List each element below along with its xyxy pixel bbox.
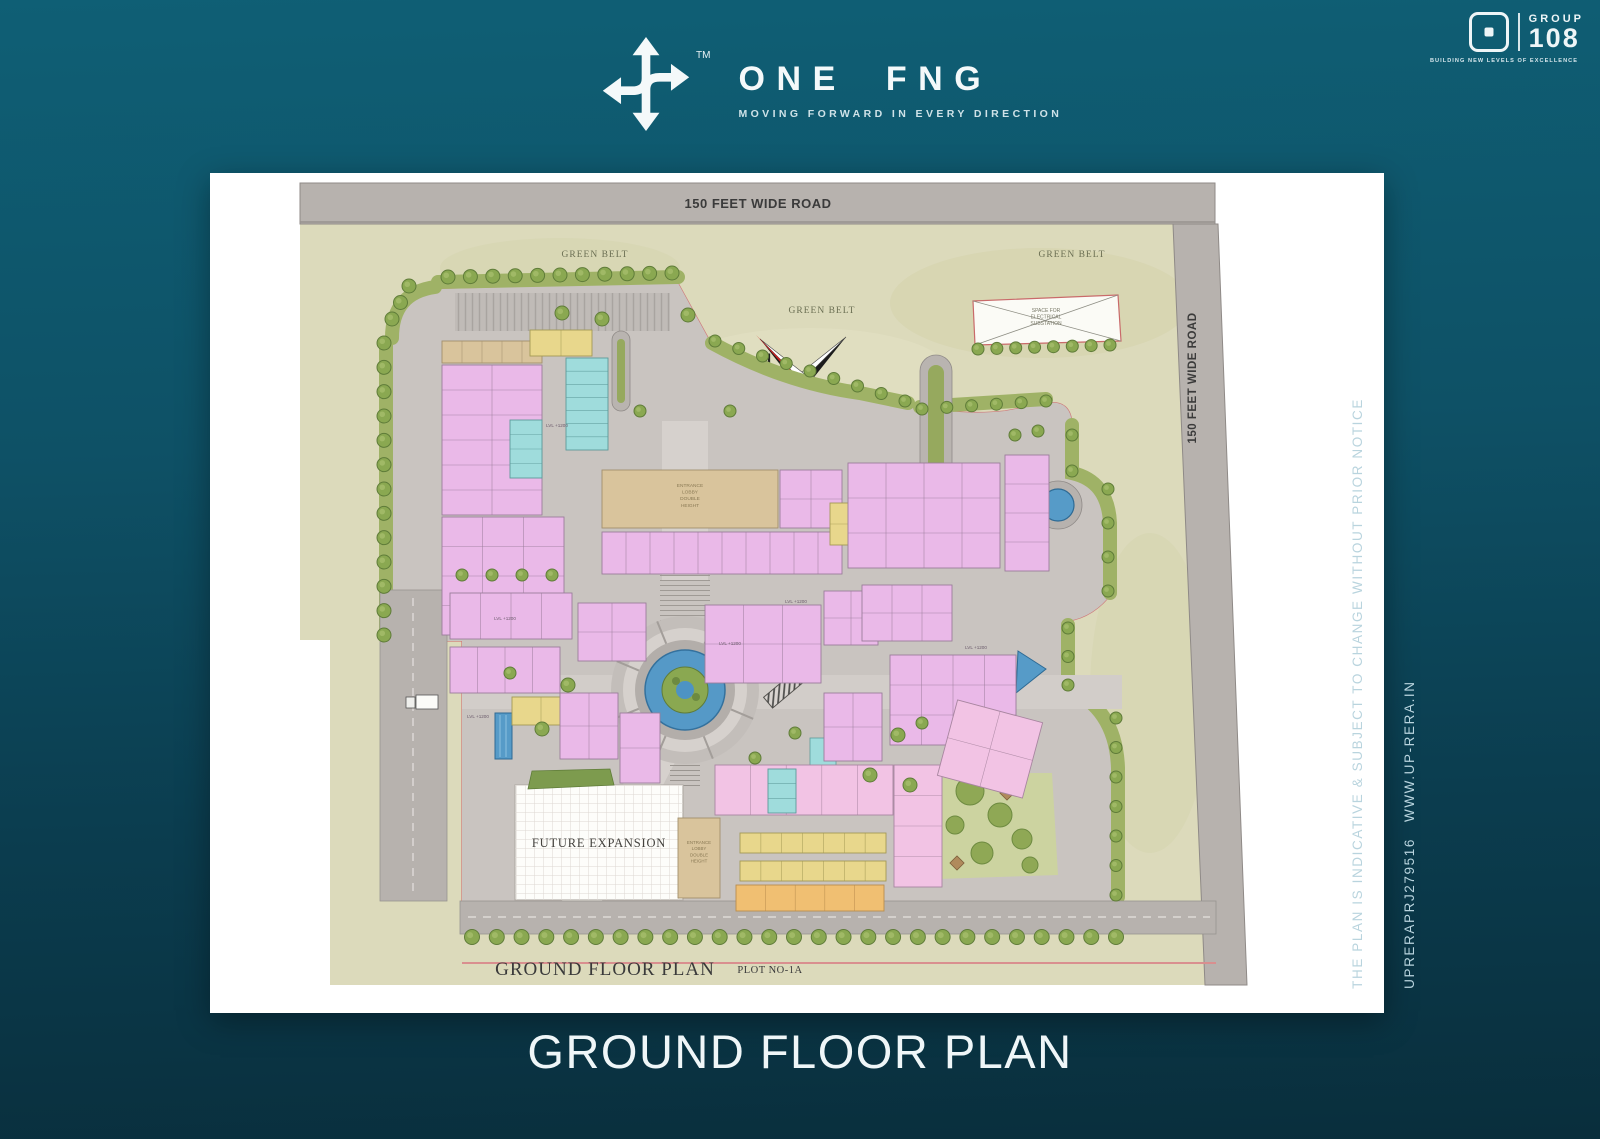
tree-icon <box>966 400 978 412</box>
group108-tagline: BUILDING NEW LEVELS OF EXCELLENCE <box>1424 58 1584 64</box>
lap-pool <box>495 713 512 759</box>
tree-icon <box>377 385 391 399</box>
building-cluster <box>848 463 1000 568</box>
tree-icon <box>916 717 928 729</box>
tree-icon <box>861 930 876 945</box>
trademark-symbol: TM <box>696 50 710 61</box>
tree-icon <box>535 722 549 736</box>
tree-icon <box>377 458 391 472</box>
tree-icon <box>1110 830 1122 842</box>
tree-icon <box>377 433 391 447</box>
building-cluster <box>560 693 618 759</box>
level-label: LVL +1200 <box>494 616 516 621</box>
building-cluster <box>602 532 842 574</box>
tree-icon <box>504 667 516 679</box>
tree-icon <box>377 409 391 423</box>
tree-icon <box>1062 622 1074 634</box>
building-cluster <box>740 833 886 853</box>
plan-title-label: GROUND FLOOR PLAN <box>495 959 715 980</box>
tree-icon <box>1110 801 1122 813</box>
building-cluster <box>442 341 542 363</box>
tree-icon <box>486 269 500 283</box>
tree-icon <box>553 268 567 282</box>
top-road-label: 150 FEET WIDE ROAD <box>685 196 832 211</box>
tree-icon <box>1102 585 1114 597</box>
tree-icon <box>377 628 391 642</box>
tree-icon <box>916 403 928 415</box>
tree-icon <box>863 768 877 782</box>
tree-icon <box>561 678 575 692</box>
garden-mound <box>1012 829 1032 849</box>
tree-icon <box>620 267 634 281</box>
tree-icon <box>575 268 589 282</box>
logo-divider <box>1518 13 1520 51</box>
building-cluster <box>736 885 884 911</box>
hedge-strip <box>528 769 614 789</box>
tree-icon <box>886 930 901 945</box>
tree-icon <box>991 342 1003 354</box>
tree-icon <box>1110 712 1122 724</box>
disclaimer-line1: THE PLAN IS INDICATIVE & SUBJECT TO CHAN… <box>1347 398 1369 989</box>
group108-number: 108 <box>1529 25 1584 51</box>
tree-icon <box>852 380 864 392</box>
brand-logo: TM ONE FNG MOVING FORWARD IN EVERY DIREC… <box>598 36 1062 132</box>
building-cluster <box>740 861 886 881</box>
tree-icon <box>757 350 769 362</box>
building-cluster <box>530 330 592 356</box>
tree-icon <box>990 398 1002 410</box>
tree-icon <box>377 336 391 350</box>
tree-icon <box>508 269 522 283</box>
brand-tagline: MOVING FORWARD IN EVERY DIRECTION <box>738 108 1062 120</box>
tree-icon <box>665 266 679 280</box>
site-plan-drawing: 150 FEET WIDE ROAD 150 FEET WIDE ROAD GR… <box>210 173 1384 1013</box>
building-cluster <box>862 585 952 641</box>
tree-icon <box>985 930 1000 945</box>
tree-icon <box>1059 930 1074 945</box>
tree-icon <box>377 555 391 569</box>
plot-number-label: PLOT NO-1A <box>737 965 802 976</box>
tree-icon <box>377 579 391 593</box>
tree-icon <box>588 930 603 945</box>
tree-icon <box>972 343 984 355</box>
tree-icon <box>1062 679 1074 691</box>
tree-icon <box>1066 429 1078 441</box>
tree-icon <box>899 395 911 407</box>
tree-icon <box>709 335 721 347</box>
tree-icon <box>1040 395 1052 407</box>
tree-icon <box>546 569 558 581</box>
tree-icon <box>733 343 745 355</box>
tree-icon <box>941 401 953 413</box>
disclaimer-note: THE PLAN IS INDICATIVE & SUBJECT TO CHAN… <box>1317 398 1436 989</box>
tree-icon <box>634 405 646 417</box>
tree-icon <box>514 930 529 945</box>
tree-icon <box>595 312 609 326</box>
group108-icon <box>1469 12 1509 52</box>
tree-icon <box>935 930 950 945</box>
building-cluster <box>578 603 646 661</box>
tree-icon <box>804 365 816 377</box>
tree-icon <box>377 531 391 545</box>
tree-icon <box>1110 889 1122 901</box>
level-label: LVL +1200 <box>546 423 568 428</box>
tree-icon <box>489 930 504 945</box>
building-cluster <box>510 420 542 478</box>
tree-icon <box>394 296 408 310</box>
tree-icon <box>1010 342 1022 354</box>
tree-icon <box>875 388 887 400</box>
tree-icon <box>910 930 925 945</box>
tree-icon <box>836 930 851 945</box>
tree-icon <box>681 308 695 322</box>
tree-icon <box>1102 517 1114 529</box>
tree-icon <box>811 930 826 945</box>
page-title: GROUND FLOOR PLAN <box>0 1024 1600 1079</box>
tree-icon <box>687 930 702 945</box>
tree-icon <box>402 279 416 293</box>
tree-icon <box>789 727 801 739</box>
disclaimer-line2: UPRERAPRJ279516 WWW.UP-RERA.IN <box>1399 398 1421 989</box>
tree-icon <box>1034 930 1049 945</box>
tree-icon <box>486 569 498 581</box>
tree-icon <box>564 930 579 945</box>
building-cluster <box>894 765 942 887</box>
building-cluster <box>768 769 796 813</box>
garden-mound <box>1022 857 1038 873</box>
tree-icon <box>1047 341 1059 353</box>
tree-icon <box>1102 551 1114 563</box>
tree-icon <box>787 930 802 945</box>
tree-icon <box>1109 930 1124 945</box>
dropoff-loop-small <box>612 331 630 411</box>
tree-icon <box>643 266 657 280</box>
level-label: LVL +1200 <box>719 641 741 646</box>
tree-icon <box>1102 483 1114 495</box>
tree-icon <box>1110 771 1122 783</box>
tree-icon <box>1015 397 1027 409</box>
right-road-label: 150 FEET WIDE ROAD <box>1187 312 1199 443</box>
green-belt-label-3: GREEN BELT <box>789 306 856 316</box>
tree-icon <box>377 604 391 618</box>
building-cluster <box>620 713 660 783</box>
tree-icon <box>1029 341 1041 353</box>
level-label: LVL +1200 <box>965 645 987 650</box>
tree-icon <box>463 270 477 284</box>
tree-icon <box>465 930 480 945</box>
tree-icon <box>828 373 840 385</box>
tree-icon <box>441 270 455 284</box>
tree-icon <box>1066 465 1078 477</box>
tree-icon <box>555 306 569 320</box>
tree-icon <box>531 268 545 282</box>
tree-icon <box>377 506 391 520</box>
level-label: LVL +1200 <box>467 714 489 719</box>
building-cluster <box>824 693 882 761</box>
truck-icon <box>406 695 438 709</box>
tree-icon <box>1110 860 1122 872</box>
tree-icon <box>539 930 554 945</box>
tree-icon <box>663 930 678 945</box>
tree-icon <box>749 752 761 764</box>
garden-mound <box>988 803 1012 827</box>
garden-mound <box>971 842 993 864</box>
tree-icon <box>598 267 612 281</box>
tree-icon <box>1009 429 1021 441</box>
building-cluster <box>566 358 608 450</box>
substation-label: SPACE FORELECTRICALSUBSTATION <box>1030 308 1062 327</box>
floor-plan-sheet: 150 FEET WIDE ROAD 150 FEET WIDE ROAD GR… <box>210 173 1384 1013</box>
tree-icon <box>385 312 399 326</box>
tree-icon <box>377 482 391 496</box>
electrical-substation-box: SPACE FORELECTRICALSUBSTATION <box>973 295 1121 345</box>
building-cluster <box>1005 455 1049 571</box>
tree-icon <box>724 405 736 417</box>
tree-icon <box>1009 930 1024 945</box>
tree-icon <box>762 930 777 945</box>
garden-mound <box>946 816 964 834</box>
brand-name: ONE FNG <box>738 60 1062 99</box>
tree-icon <box>377 360 391 374</box>
tree-icon <box>456 569 468 581</box>
tree-icon <box>903 778 917 792</box>
tree-icon <box>737 930 752 945</box>
green-belt-label-1: GREEN BELT <box>562 250 629 260</box>
future-expansion-area: FUTURE EXPANSION <box>515 785 683 900</box>
tree-icon <box>1084 930 1099 945</box>
tree-icon <box>1085 340 1097 352</box>
tree-icon <box>1104 339 1116 351</box>
tree-icon <box>1066 340 1078 352</box>
group108-logo: GROUP 108 BUILDING NEW LEVELS OF EXCELLE… <box>1424 12 1584 64</box>
future-expansion-label: FUTURE EXPANSION <box>532 836 666 850</box>
tree-icon <box>1062 651 1074 663</box>
green-belt-label-2: GREEN BELT <box>1039 250 1106 260</box>
tree-icon <box>638 930 653 945</box>
level-label: LVL +1200 <box>785 599 807 604</box>
tree-icon <box>960 930 975 945</box>
tree-icon <box>1032 425 1044 437</box>
tree-icon <box>712 930 727 945</box>
compass-arrows-icon <box>598 36 694 132</box>
tree-icon <box>516 569 528 581</box>
tree-icon <box>780 358 792 370</box>
tree-icon <box>1110 742 1122 754</box>
tree-icon <box>891 728 905 742</box>
tree-icon <box>613 930 628 945</box>
